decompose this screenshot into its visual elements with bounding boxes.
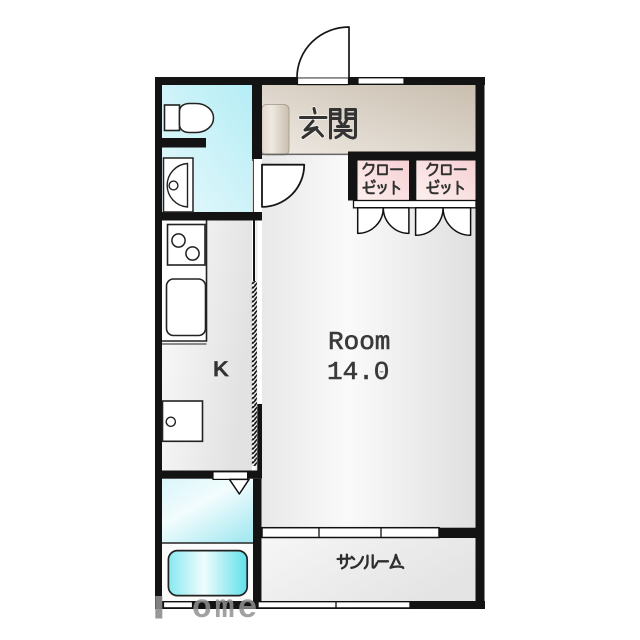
svg-text:Room: Room — [328, 327, 390, 357]
svg-text:ome: ome — [192, 590, 260, 627]
svg-text:14.0: 14.0 — [327, 357, 389, 387]
svg-text:K: K — [213, 358, 229, 383]
